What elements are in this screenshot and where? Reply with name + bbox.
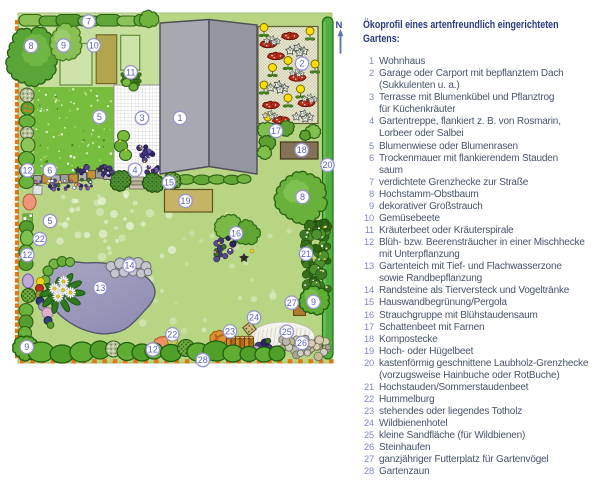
svg-text:5: 5 <box>97 112 102 122</box>
svg-text:9: 9 <box>61 41 66 51</box>
svg-text:9: 9 <box>311 297 316 307</box>
svg-text:12: 12 <box>22 166 32 176</box>
svg-text:21: 21 <box>301 249 311 259</box>
svg-text:12: 12 <box>148 345 158 355</box>
svg-text:24: 24 <box>249 313 259 323</box>
svg-text:5: 5 <box>47 216 52 226</box>
svg-text:13: 13 <box>95 283 105 293</box>
svg-text:6: 6 <box>47 166 52 176</box>
svg-text:16: 16 <box>231 229 241 239</box>
svg-text:17: 17 <box>271 126 281 136</box>
svg-text:28: 28 <box>198 355 208 365</box>
svg-text:2: 2 <box>299 59 304 69</box>
svg-text:27: 27 <box>287 298 297 308</box>
svg-text:12: 12 <box>22 250 32 260</box>
svg-text:10: 10 <box>89 41 99 51</box>
svg-text:4: 4 <box>132 165 137 175</box>
svg-text:14: 14 <box>124 261 134 271</box>
svg-text:8: 8 <box>300 192 305 202</box>
svg-text:3: 3 <box>139 113 144 123</box>
svg-text:20: 20 <box>322 160 332 170</box>
svg-text:15: 15 <box>164 178 174 188</box>
svg-text:23: 23 <box>225 327 235 337</box>
svg-text:9: 9 <box>24 342 29 352</box>
svg-text:25: 25 <box>282 327 292 337</box>
svg-text:11: 11 <box>126 68 135 78</box>
svg-text:8: 8 <box>28 41 33 51</box>
svg-text:19: 19 <box>180 196 190 206</box>
svg-text:22: 22 <box>167 330 177 340</box>
svg-text:26: 26 <box>297 338 307 348</box>
svg-text:1: 1 <box>177 113 182 123</box>
svg-text:22: 22 <box>35 234 45 244</box>
svg-text:18: 18 <box>297 145 307 155</box>
svg-text:7: 7 <box>86 17 91 27</box>
svg-text:N: N <box>336 20 343 31</box>
